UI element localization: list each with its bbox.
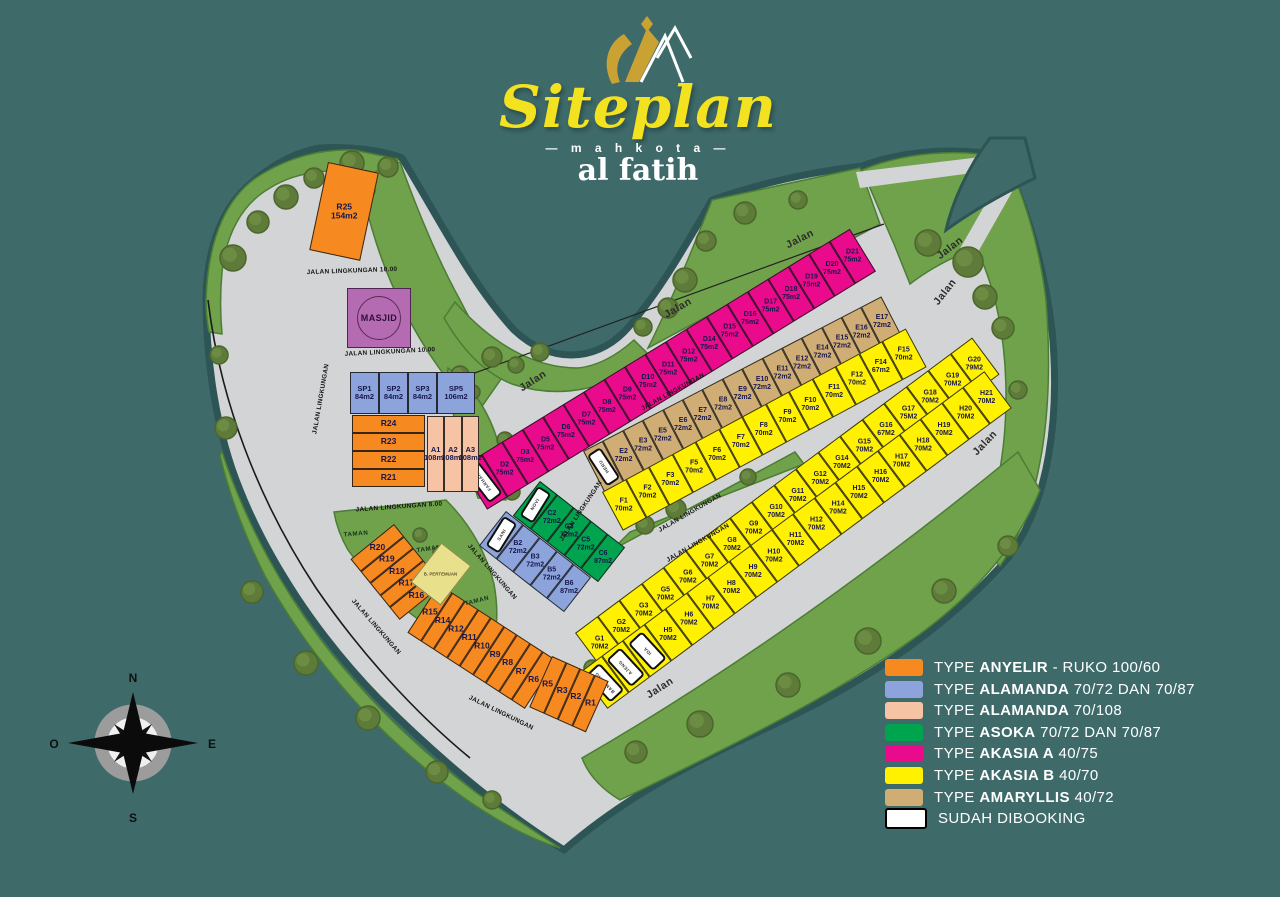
compass-north-label: N [129, 671, 138, 685]
lot-label: F15 70m2 [895, 347, 913, 362]
lot-label: D10 75m2 [639, 374, 657, 389]
booked-buyer-name: HERU [597, 459, 609, 474]
lot-label: H6 70M2 [681, 612, 699, 627]
lot-label: E7 72m2 [694, 407, 712, 422]
lot-A1: A1 108m2 [427, 416, 444, 492]
lot-label: D19 75m2 [803, 274, 821, 289]
tree-highlight [994, 319, 1006, 331]
lot-label: H18 70M2 [915, 438, 933, 453]
compass-west-label: O [49, 737, 58, 751]
lot-label: E6 72m2 [674, 417, 692, 432]
tree-highlight [533, 345, 543, 355]
legend-row: TYPE AKASIA A 40/75 [885, 745, 1195, 762]
lot-label: G15 70M2 [856, 439, 874, 454]
lot-label: D21 75m2 [844, 249, 862, 264]
legend-label: TYPE AKASIA A 40/75 [934, 745, 1098, 762]
tree-highlight [778, 675, 791, 688]
booked-buyer-name: NOVI [529, 498, 540, 512]
tree-highlight [636, 320, 646, 330]
lot-label: E15 72m2 [833, 335, 851, 350]
lot-A3: A3 108m2 [462, 416, 479, 492]
legend-label: TYPE ANYELIR - RUKO 100/60 [934, 659, 1160, 676]
lot-label: C2 72m2 [543, 511, 561, 526]
lot-label: R16 [408, 591, 424, 600]
legend-swatch [885, 724, 923, 741]
lot-label: H17 70M2 [893, 453, 911, 468]
lot-label: H5 70M2 [659, 627, 677, 642]
tree-highlight [698, 233, 709, 244]
lot-label: H20 70M2 [957, 406, 975, 421]
tree-highlight [627, 743, 639, 755]
lot-label: G20 79M2 [966, 356, 984, 371]
legend-swatch [885, 745, 923, 762]
lot-label: G7 70M2 [701, 553, 719, 568]
lot-label: E9 72m2 [734, 386, 752, 401]
lot-label: B3 72m2 [526, 554, 544, 569]
lot-label: R6 [528, 675, 539, 684]
title-script: Siteplan [468, 78, 808, 136]
lot-SP3: SP3 84m2 [408, 372, 437, 414]
lot-label: G5 70M2 [657, 586, 675, 601]
lot-label: F5 70m2 [685, 460, 703, 475]
lot-label: H9 70M2 [744, 564, 762, 579]
tree-highlight [934, 581, 947, 594]
lot-label: G18 70M2 [922, 389, 940, 404]
lot-label: R2 [571, 693, 582, 702]
legend-row: TYPE ALAMANDA 70/72 DAN 70/87 [885, 681, 1195, 698]
compass-rose: N E S O [49, 671, 216, 825]
lot-label: R19 [379, 555, 395, 564]
lot-label: D9 75m2 [619, 387, 637, 402]
lot-label: R25 154m2 [331, 202, 357, 221]
lot-SP2: SP2 84m2 [379, 372, 408, 414]
lot-label: F9 70m2 [778, 409, 796, 424]
tree-highlight [358, 708, 371, 721]
tree-highlight [243, 583, 255, 595]
compass-major-star [68, 692, 198, 794]
lot-R24: R24 [352, 415, 425, 433]
lot-label: H11 70M2 [787, 532, 805, 547]
block-R24-21: R24R23R22R21 [352, 415, 425, 487]
legend: TYPE ANYELIR - RUKO 100/60TYPE ALAMANDA … [885, 659, 1195, 827]
lot-label: R3 [556, 686, 567, 695]
title-block: Siteplan — m a h k o t a — al fatih [468, 16, 808, 187]
compass-east-label: E [208, 737, 216, 751]
lot-label: SP5 106m2 [444, 385, 467, 402]
tree-highlight [380, 159, 391, 170]
tree-highlight [485, 793, 495, 803]
lot-label: R23 [381, 437, 397, 446]
lot-label: H15 70M2 [851, 485, 869, 500]
lot-label: SP3 84m2 [413, 385, 432, 402]
logo-gold-diamond [641, 16, 653, 32]
lot-label: R7 [515, 667, 526, 676]
lot-label: F6 70m2 [708, 447, 726, 462]
block-SP: SP1 84m2SP2 84m2SP3 84m2SP5 106m2 [350, 372, 475, 414]
lot-label: H8 70M2 [723, 580, 741, 595]
booked-buyer-name: IDA [642, 646, 652, 656]
lot-label: D2 75m2 [496, 462, 514, 477]
lot-label: F1 70m2 [615, 497, 633, 512]
lot-R23: R23 [352, 433, 425, 451]
booked-buyer-name: AJENG [618, 658, 634, 675]
meeting-hall-label: B. PERTEMUAN [424, 571, 457, 576]
tree-highlight [742, 471, 751, 480]
tree-highlight [414, 529, 422, 537]
lot-label: C6 87m2 [594, 550, 612, 565]
lot-label: R5 [542, 680, 553, 689]
tree-highlight [217, 419, 229, 431]
lot-SP5: SP5 106m2 [437, 372, 475, 414]
lot-label: E17 72m2 [873, 314, 891, 329]
lot-R22: R22 [352, 451, 425, 469]
lot-label: H19 70M2 [936, 422, 954, 437]
tree-highlight [276, 187, 289, 200]
lot-label: F7 70m2 [732, 435, 750, 450]
lot-A2: A2 108m2 [444, 416, 461, 492]
tree-highlight [690, 714, 704, 728]
lot-label: F12 70m2 [848, 372, 866, 387]
legend-swatch [885, 808, 927, 829]
lot-label: R8 [502, 659, 513, 668]
tree-highlight [428, 763, 440, 775]
lot-label: SP2 84m2 [384, 385, 403, 402]
lot-label: D6 75m2 [557, 424, 575, 439]
legend-label: TYPE ALAMANDA 70/108 [934, 702, 1122, 719]
lot-label: E5 72m2 [654, 428, 672, 443]
lot-label: D15 75m2 [721, 324, 739, 339]
lot-label: G17 75M2 [900, 406, 918, 421]
booked-buyer-name: SANI [495, 528, 506, 541]
tree-highlight [1011, 383, 1021, 393]
lot-label: D20 75m2 [823, 261, 841, 276]
tree-highlight [918, 233, 932, 247]
lot-label: F14 67m2 [872, 359, 890, 374]
legend-swatch [885, 789, 923, 806]
lot-label: D17 75m2 [762, 299, 780, 314]
legend-label: TYPE ASOKA 70/72 DAN 70/87 [934, 724, 1161, 741]
lot-label: E2 72m2 [614, 448, 632, 463]
legend-row: TYPE ALAMANDA 70/108 [885, 702, 1195, 719]
legend-swatch [885, 702, 923, 719]
tree-highlight [791, 193, 801, 203]
lot-label: D18 75m2 [782, 286, 800, 301]
lot-label: E10 72m2 [754, 376, 772, 391]
lot-label: H10 70M2 [766, 548, 784, 563]
tree-highlight [858, 631, 872, 645]
legend-row: TYPE AMARYLLIS 40/72 [885, 789, 1195, 806]
lot-R21: R21 [352, 469, 425, 487]
tree-highlight [1000, 538, 1011, 549]
lot-label: E11 72m2 [773, 366, 791, 381]
legend-row: TYPE AKASIA B 40/70 [885, 767, 1195, 784]
masjid-label: MASJID [361, 313, 397, 323]
lot-label: G2 70M2 [613, 619, 631, 634]
lot-label: F10 70m2 [802, 397, 820, 412]
lot-label: G11 70M2 [790, 488, 808, 503]
legend-label: TYPE AMARYLLIS 40/72 [934, 789, 1114, 806]
lot-label: G19 70M2 [944, 373, 962, 388]
tree-highlight [212, 348, 222, 358]
tree-highlight [223, 248, 237, 262]
legend-row: TYPE ASOKA 70/72 DAN 70/87 [885, 724, 1195, 741]
lot-label: B5 72m2 [543, 567, 561, 582]
lot-label: F11 70m2 [825, 384, 843, 399]
lot-label: R15 [422, 608, 438, 617]
lot-label: R12 [448, 625, 464, 634]
block-A: A1 108m2A2 108m2A3 108m2 [427, 416, 479, 492]
lot-label: F2 70m2 [638, 485, 656, 500]
lot-label: D3 75m2 [516, 449, 534, 464]
lot-label: H16 70M2 [872, 469, 890, 484]
tree-highlight [510, 359, 519, 368]
lot-label: B6 87m2 [560, 580, 578, 595]
lot-label: R21 [381, 473, 397, 482]
compass-south-label: S [129, 811, 137, 825]
lot-label: D8 75m2 [598, 399, 616, 414]
lot-label: A3 108m2 [459, 446, 482, 463]
tree-highlight [975, 287, 988, 300]
lot-label: R11 [461, 633, 476, 642]
lot-label: F8 70m2 [755, 422, 773, 437]
legend-label: SUDAH DIBOOKING [938, 810, 1086, 827]
legend-swatch [885, 767, 923, 784]
lot-label: E12 72m2 [793, 356, 811, 371]
masjid-lot: MASJID [347, 288, 411, 348]
legend-label: TYPE ALAMANDA 70/72 DAN 70/87 [934, 681, 1195, 698]
siteplan-poster: N E S O FARHAND2 75m2D3 75m2D5 75m2D6 75… [0, 0, 1280, 897]
lot-label: G16 67M2 [878, 422, 896, 437]
lot-label: G1 70M2 [591, 636, 609, 651]
legend-row: TYPE ANYELIR - RUKO 100/60 [885, 659, 1195, 676]
lot-label: G8 70M2 [723, 537, 741, 552]
lot-label: F3 70m2 [662, 472, 680, 487]
tree-highlight [484, 349, 495, 360]
lot-label: H12 70M2 [808, 517, 826, 532]
tree-highlight [306, 170, 317, 181]
lot-label: E16 72m2 [853, 325, 871, 340]
lot-label: R14 [435, 616, 451, 625]
lot-label: G12 70M2 [812, 471, 830, 486]
lot-label: D12 75m2 [680, 349, 698, 364]
tree-highlight [296, 653, 309, 666]
lot-label: E8 72m2 [714, 397, 732, 412]
title-brand: al fatih [468, 155, 808, 187]
lot-label: D11 75m2 [660, 361, 678, 376]
tree-highlight [249, 213, 261, 225]
lot-label: G14 70M2 [834, 455, 852, 470]
lot-label: H7 70M2 [702, 596, 720, 611]
legend-label: TYPE AKASIA B 40/70 [934, 767, 1099, 784]
tree-highlight [956, 250, 973, 267]
lot-SP1: SP1 84m2 [350, 372, 379, 414]
lot-label: R18 [389, 567, 405, 576]
tree-highlight [675, 270, 688, 283]
lot-label: G9 70M2 [745, 521, 763, 536]
lot-label: D16 75m2 [741, 311, 759, 326]
lot-label: G3 70M2 [635, 603, 653, 618]
lot-label: R24 [381, 419, 397, 428]
lot-label: C5 72m2 [577, 537, 595, 552]
lot-label: G6 70M2 [679, 570, 697, 585]
tree-highlight [736, 204, 748, 216]
lot-label: R1 [585, 699, 596, 708]
lot-label: D7 75m2 [578, 412, 596, 427]
lot-label: E14 72m2 [813, 345, 831, 360]
lot-label: R20 [369, 543, 385, 552]
lot-label: D14 75m2 [700, 336, 718, 351]
lot-label: SP1 84m2 [355, 385, 374, 402]
legend-swatch [885, 681, 923, 698]
legend-swatch [885, 659, 923, 676]
lot-label: B2 72m2 [509, 541, 527, 556]
lot-label: D5 75m2 [537, 437, 555, 452]
lot-label: H21 70M2 [978, 390, 996, 405]
lot-label: R10 [474, 642, 490, 651]
lot-label: R22 [381, 455, 397, 464]
lot-label: G10 70M2 [768, 504, 786, 519]
lot-label: H14 70M2 [829, 501, 847, 516]
lot-label: E3 72m2 [634, 438, 652, 453]
lot-label: R9 [489, 650, 500, 659]
legend-row: SUDAH DIBOOKING [885, 810, 1195, 827]
